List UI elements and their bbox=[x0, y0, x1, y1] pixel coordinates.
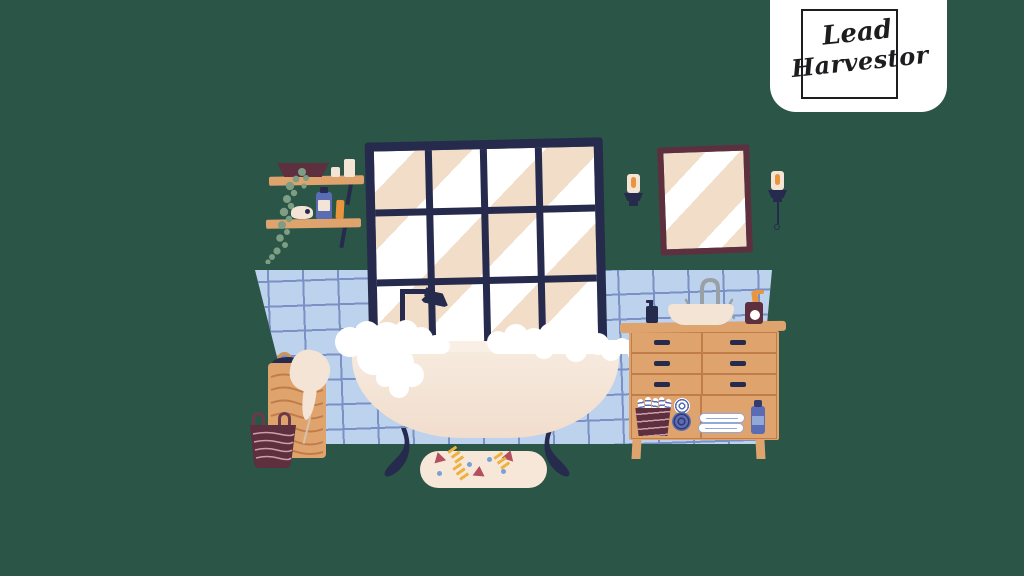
candle-small bbox=[331, 167, 340, 177]
sconce-base bbox=[773, 196, 782, 202]
logo-frame-gap bbox=[836, 81, 852, 87]
bath-foam bbox=[330, 316, 642, 408]
sconce-flame bbox=[775, 174, 780, 185]
sconce-flame bbox=[631, 177, 636, 188]
sconce-base bbox=[629, 200, 638, 206]
mat-dot bbox=[487, 457, 492, 462]
logo-badge: Lead Harvestor bbox=[770, 0, 947, 112]
soap-dispenser bbox=[646, 306, 658, 323]
vanity-leg bbox=[632, 440, 642, 459]
folded-towel bbox=[699, 413, 745, 423]
laundry-basket-small bbox=[246, 423, 300, 469]
mat-triangle bbox=[473, 465, 486, 476]
soap-bottle-label bbox=[750, 310, 760, 320]
drawer-handle bbox=[654, 382, 670, 387]
window-mullion-vertical bbox=[425, 150, 436, 342]
jar-dot bbox=[305, 209, 310, 214]
shampoo-bottle-label bbox=[752, 416, 764, 425]
window-mullion-vertical bbox=[535, 148, 546, 340]
rolled-towel bbox=[645, 397, 651, 409]
drawer-handle bbox=[730, 361, 746, 366]
shampoo-bottle-cap bbox=[754, 400, 762, 407]
drawer-handle bbox=[730, 340, 746, 345]
bathroom-illustration-banner: Lead Harvestor bbox=[0, 0, 1024, 576]
wall-mirror bbox=[657, 144, 753, 255]
cosmetic-tube-orange bbox=[336, 200, 345, 219]
tub-claw-foot bbox=[382, 428, 414, 478]
mat-dot bbox=[467, 462, 472, 467]
drawer-handle bbox=[730, 382, 746, 387]
shelf-bracket bbox=[345, 184, 353, 205]
shelf-bracket bbox=[339, 227, 347, 248]
sink-bowl bbox=[668, 304, 734, 325]
soap-bottle-nozzle bbox=[754, 290, 764, 294]
window-mullion-vertical bbox=[480, 149, 491, 341]
logo-text: Lead Harvestor bbox=[767, 9, 949, 85]
soap-dispenser-spout bbox=[646, 300, 653, 303]
candle-large bbox=[344, 159, 355, 177]
vanity-leg bbox=[756, 440, 766, 459]
drawer-handle bbox=[654, 361, 670, 366]
mat-dot bbox=[437, 471, 442, 476]
lotion-bottle-cap bbox=[320, 187, 328, 193]
mat-dot bbox=[501, 469, 506, 474]
lotion-bottle-label bbox=[318, 200, 330, 211]
spiral-towel-roll bbox=[672, 412, 691, 431]
drawer-handle bbox=[654, 340, 670, 345]
sconce-pull-ring bbox=[774, 224, 780, 230]
towel-basket bbox=[633, 408, 673, 436]
folded-towel bbox=[698, 423, 744, 433]
sconce-pull-chain bbox=[777, 202, 779, 224]
